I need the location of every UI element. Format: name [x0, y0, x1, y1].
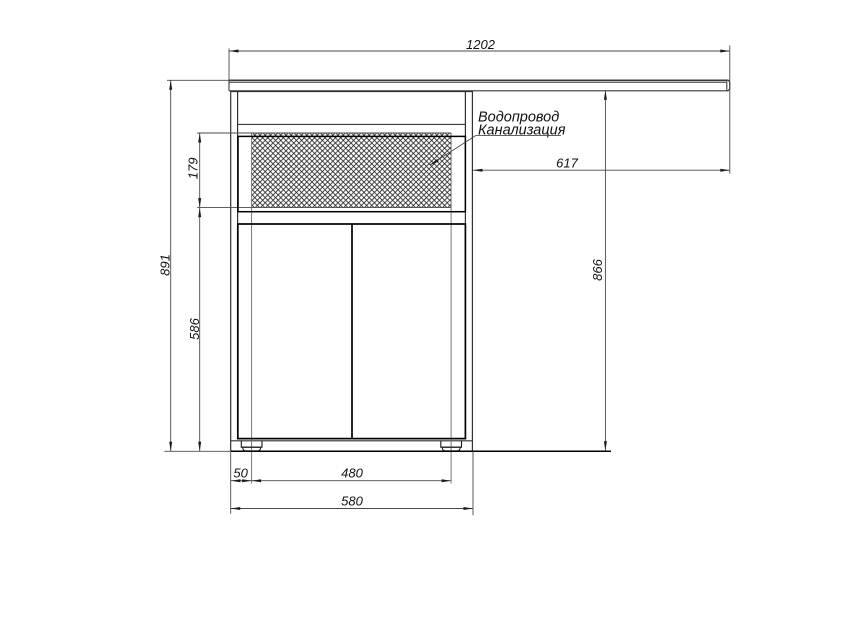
svg-text:179: 179 — [186, 158, 201, 180]
svg-text:586: 586 — [187, 317, 202, 339]
svg-text:580: 580 — [341, 494, 363, 509]
svg-text:617: 617 — [556, 155, 578, 170]
svg-text:50: 50 — [233, 466, 248, 481]
svg-text:1202: 1202 — [466, 37, 496, 52]
svg-text:Канализация: Канализация — [478, 122, 566, 138]
svg-text:480: 480 — [341, 466, 363, 481]
svg-text:891: 891 — [158, 254, 173, 276]
svg-text:866: 866 — [590, 258, 605, 280]
